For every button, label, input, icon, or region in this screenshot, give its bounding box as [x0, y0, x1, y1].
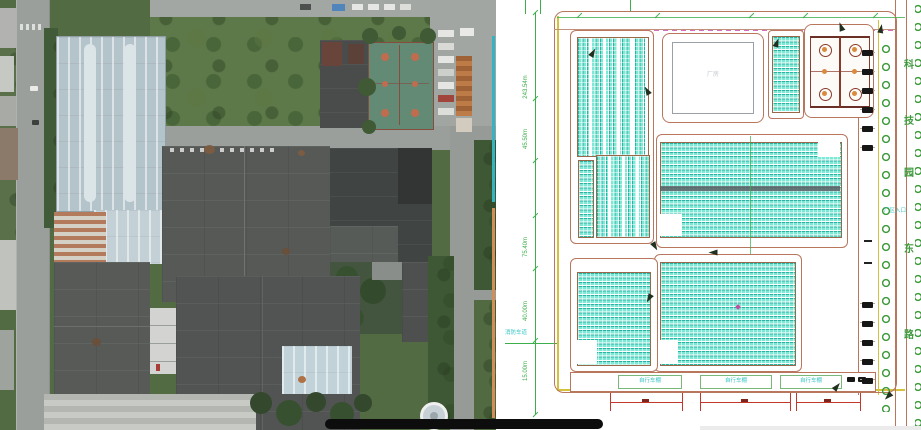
white-building-label: 厂房 [673, 69, 753, 78]
empty-stall-mark [864, 262, 872, 264]
gym-roof-patch [348, 44, 364, 64]
car-icon [352, 4, 363, 10]
edge-strip-teal [492, 36, 495, 202]
red-dim-value-mark [741, 399, 748, 402]
pv-array-bottomright [660, 262, 796, 366]
basketball-court [810, 36, 840, 108]
red-dim-value-mark [642, 399, 649, 402]
building-far-left-2 [0, 56, 14, 92]
building-far-left-1 [0, 8, 16, 48]
roof-block-dark [398, 148, 432, 204]
roof-vents [170, 148, 280, 152]
building-far-left-4 [0, 240, 16, 310]
car-icon [438, 56, 454, 63]
car-icon [862, 145, 873, 151]
fire-lane-label: 消防车道 [505, 328, 527, 336]
roof-ridge [124, 44, 136, 202]
dim-line-top [557, 17, 905, 18]
dim-label: 40.00m [523, 294, 529, 328]
car-icon [400, 4, 411, 10]
car-icon [438, 95, 454, 102]
red-dim-line [796, 402, 860, 403]
car-icon [368, 4, 379, 10]
car-icon [438, 30, 454, 37]
rust-spot [204, 145, 215, 154]
roof-lower-section [330, 226, 398, 262]
street-name-char: 技 [904, 112, 914, 127]
roof-ridge [84, 44, 96, 202]
rust-spot [282, 248, 290, 255]
red-vehicle [156, 364, 160, 371]
long-shed-roofs [44, 394, 256, 430]
dim-line-stub [540, 0, 541, 14]
aerial-photo [0, 0, 496, 430]
tree [354, 394, 372, 412]
dim-label: 243.54m [523, 70, 529, 104]
roof-notch [660, 214, 682, 236]
building-bottom-left [54, 262, 150, 394]
dim-label: 45.50m [523, 122, 529, 156]
pv-array-ladder [578, 160, 594, 238]
white-building: 厂房 [672, 42, 754, 114]
street-name-char: 东 [904, 240, 914, 255]
car-icon [438, 82, 454, 89]
car-icon [438, 108, 454, 115]
street-tree-row [880, 40, 892, 412]
shed-label: 自行车棚 [619, 376, 681, 384]
building-far-left-brown [0, 128, 18, 180]
car-icon [862, 340, 873, 346]
car-icon [847, 377, 855, 382]
van-icon [460, 28, 474, 36]
roof-notch [577, 340, 597, 364]
street-name-char: 科 [904, 56, 914, 71]
tree [250, 392, 272, 414]
dim-line-stub [525, 0, 526, 14]
street-tree-row-edge [915, 0, 921, 430]
road-line-right [895, 0, 896, 430]
red-dim-value-mark [824, 399, 831, 402]
court-center-circle [852, 69, 857, 74]
car-icon [32, 120, 39, 125]
court-key [411, 109, 419, 117]
rust-spot [92, 338, 101, 346]
container-stack [456, 56, 472, 116]
rust-spot [298, 150, 305, 156]
court-key [381, 109, 389, 117]
dim-label: 15.00m [523, 354, 529, 388]
screenshot-canvas: 243.54m 45.50m 75.40m 40.00m 15.00m 消防车道… [0, 0, 921, 430]
car-icon [862, 126, 873, 132]
entrance-label: 厂区入口 [884, 206, 906, 214]
street-name-char: 路 [904, 326, 914, 341]
tree [358, 78, 376, 96]
street-name-char: 园 [904, 164, 914, 179]
shed-box: 自行车棚 [700, 375, 772, 389]
court-key [411, 53, 419, 61]
court-key [381, 53, 389, 61]
blue-skylight [282, 346, 352, 394]
building-far-left-3 [0, 96, 16, 126]
tree [420, 28, 436, 44]
car-icon [862, 69, 873, 75]
car-icon [862, 378, 873, 384]
court-center-circle [822, 69, 827, 74]
blue-roof-warehouse [56, 36, 166, 212]
edge-strip-orange [492, 208, 495, 418]
courtyard-pavement [372, 262, 402, 280]
gate-arrow-icon [709, 250, 718, 256]
pv-array-topleft-lower [596, 155, 650, 238]
crosswalk [20, 24, 44, 30]
car-icon [862, 88, 873, 94]
building-far-left-5 [0, 330, 14, 390]
basketball-courts-photo [368, 42, 434, 130]
bottom-faint-strip [700, 426, 921, 430]
roof-ridge-line [54, 326, 150, 327]
rust-roof-shed [54, 212, 106, 264]
shed-box: 自行车棚 [618, 375, 682, 389]
car-icon [30, 86, 38, 91]
car-icon [384, 4, 395, 10]
car-icon [332, 4, 345, 11]
car-icon [862, 50, 873, 56]
tree [360, 278, 386, 304]
roof-notch [660, 340, 678, 364]
tree [362, 120, 376, 134]
car-icon [862, 302, 873, 308]
court-center [382, 81, 388, 87]
red-dim-line [700, 402, 790, 403]
car-icon [862, 359, 873, 365]
site-plan-drawing: 243.54m 45.50m 75.40m 40.00m 15.00m 消防车道… [496, 0, 921, 430]
car-icon [862, 107, 873, 113]
tree [306, 392, 326, 412]
trees-right-road [428, 256, 454, 426]
container-light [456, 118, 472, 132]
shed-label: 自行车棚 [701, 376, 771, 384]
video-progress-bar[interactable] [325, 419, 603, 429]
gym-roof-patch [322, 42, 342, 66]
tree [276, 400, 302, 426]
dim-tick [533, 412, 539, 418]
rust-spot [298, 376, 306, 383]
car-icon [862, 321, 873, 327]
tree [362, 28, 378, 44]
link-bridge [148, 308, 176, 374]
red-dim-tick [682, 393, 683, 411]
dim-label: 75.40m [523, 230, 529, 264]
pv-array-small [772, 36, 800, 113]
dim-line-horizontal [505, 343, 557, 344]
red-dim-line [610, 402, 682, 403]
car-icon [438, 43, 454, 50]
roof-notch [818, 142, 840, 157]
tree [392, 26, 406, 40]
car-icon [438, 69, 454, 76]
shed-label: 自行车棚 [781, 376, 841, 384]
red-dim-tick [790, 393, 791, 411]
court-center [412, 81, 418, 87]
car-icon [300, 4, 311, 10]
empty-stall-mark [864, 240, 872, 242]
